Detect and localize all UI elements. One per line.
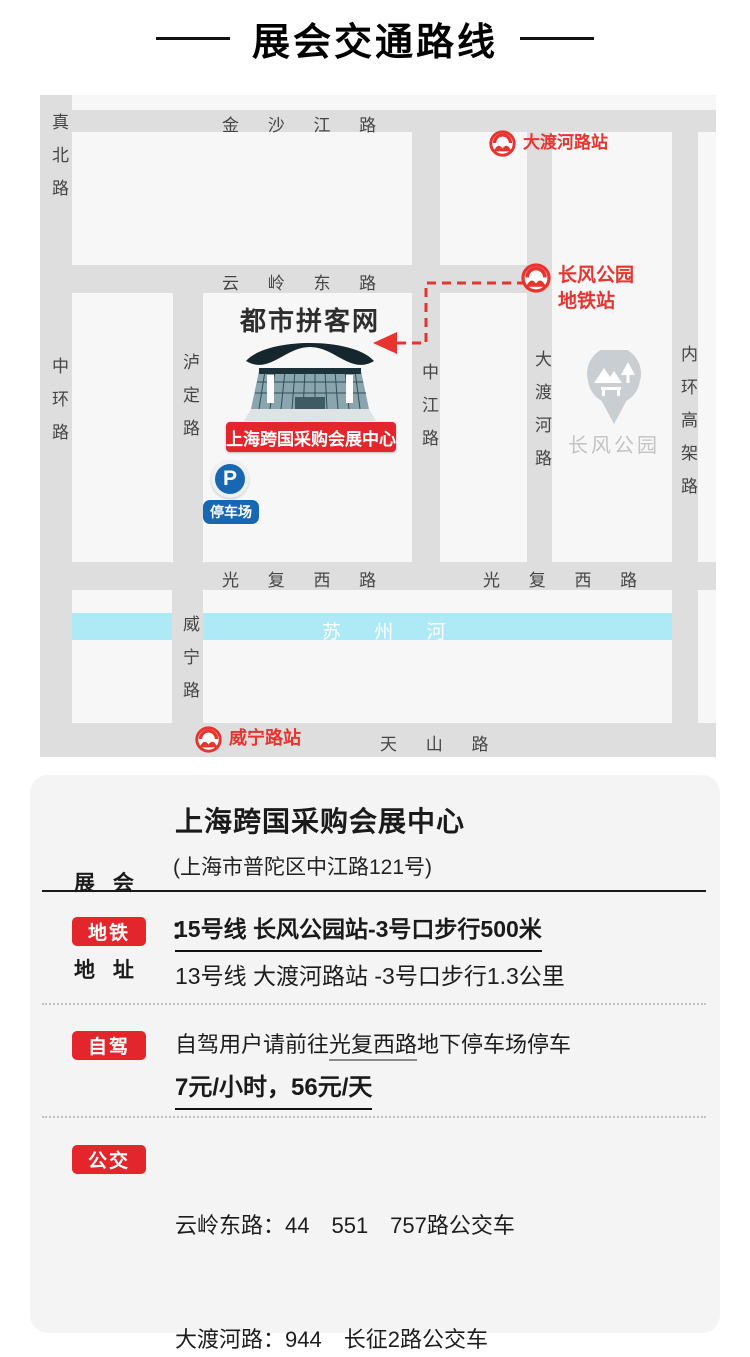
title-dash-left (156, 37, 230, 40)
driving-price-line: 7元/小时，56元/天 (175, 1067, 372, 1110)
station-changfeng-label-line1: 长风公园 (558, 263, 634, 289)
bus-lines: 云岭东路：44 551 757路公交车 大渡河路：944 长征2路公交车 古 北… (175, 1131, 645, 1357)
station-daduhe: 大渡河路站 (489, 130, 608, 157)
divider-solid (42, 890, 706, 892)
site-name: 都市拼客网 (240, 301, 375, 338)
venue-building-illustration (243, 335, 377, 431)
metro-badge: 地铁 (72, 917, 146, 946)
driving-line1-post: 地下停车场停车 (417, 1032, 571, 1057)
metro-logo-icon (489, 130, 516, 157)
bus-badge: 公交 (72, 1145, 146, 1174)
station-changfeng-label-line2: 地铁站 (558, 289, 634, 315)
walking-route-dashed-line (396, 283, 526, 343)
parking-chip-label: 停车场 (203, 500, 259, 524)
divider-dotted-1 (42, 1003, 706, 1005)
address-label-line1: 展 会 (74, 869, 169, 898)
divider-dotted-2 (42, 1116, 706, 1118)
venue-address-detail: (上海市普陀区中江路121号) (173, 851, 432, 881)
page-title: 展会交通路线 (252, 11, 498, 66)
title-dash-right (520, 37, 594, 40)
station-weining: 威宁路站 (195, 726, 301, 753)
station-changfeng: 长风公园 地铁站 (521, 263, 634, 315)
metro-logo-icon (521, 263, 551, 293)
title-row: 展会交通路线 (0, 12, 750, 64)
station-weining-label: 威宁路站 (229, 726, 301, 751)
driving-line1-road: 光复西路 (329, 1032, 417, 1061)
address-label-line2: 地 址 (74, 956, 169, 985)
bus-line-daduhe: 大渡河路：944 长征2路公交车 (175, 1321, 645, 1357)
parking-p-glyph: P (215, 464, 245, 494)
metro-line1: 15号线 长风公园站-3号口步行500米 (175, 910, 542, 952)
metro-logo-icon (195, 726, 222, 753)
park-pin-icon (585, 350, 643, 426)
driving-badge: 自驾 (72, 1031, 146, 1060)
bus-line-yunling: 云岭东路：44 551 757路公交车 (175, 1207, 645, 1245)
venue-address-name: 上海跨国采购会展中心 (175, 800, 465, 840)
traffic-map: 金 沙 江 路 云 岭 东 路 光 复 西 路 光 复 西 路 天 山 路 苏 … (40, 95, 716, 757)
parking-icon: P (211, 460, 249, 498)
info-card: 展 会 地 址 ： 上海跨国采购会展中心 (上海市普陀区中江路121号) 地铁 … (30, 775, 720, 1333)
poster-page: 展会交通路线 金 沙 江 路 云 岭 东 路 光 复 西 路 光 复 西 路 天… (0, 0, 750, 1357)
venue-name-banner: 上海跨国采购会展中心 (226, 422, 396, 452)
driving-line1: 自驾用户请前往光复西路地下停车场停车 (175, 1027, 571, 1059)
station-changfeng-label: 长风公园 地铁站 (558, 263, 634, 315)
park-label: 长风公园 (568, 429, 660, 458)
metro-line2: 13号线 大渡河路站 -3号口步行1.3公里 (175, 957, 565, 991)
station-daduhe-label: 大渡河路站 (523, 130, 608, 155)
driving-line1-pre: 自驾用户请前往 (175, 1032, 329, 1057)
